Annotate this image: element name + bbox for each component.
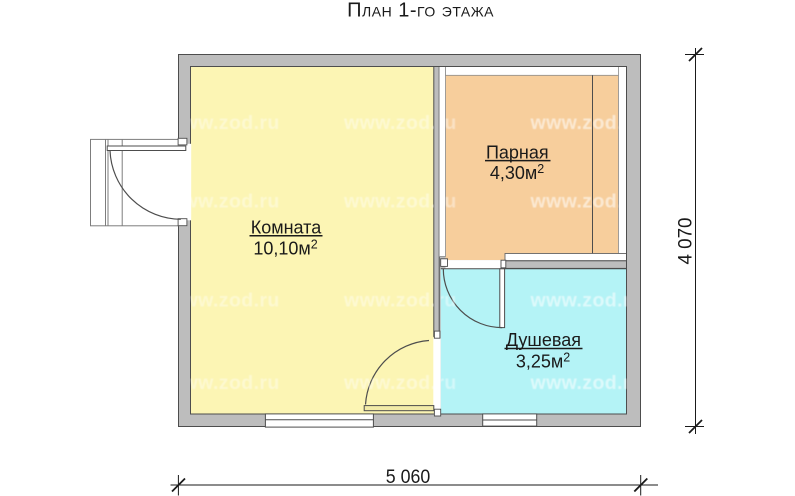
svg-text:4,30м2: 4,30м2: [490, 162, 544, 183]
svg-text:www.zod.ru: www.zod.ru: [530, 290, 644, 312]
svg-text:5 060: 5 060: [386, 466, 431, 488]
svg-text:Душевая: Душевая: [506, 330, 581, 350]
svg-text:Комната: Комната: [251, 218, 322, 238]
svg-text:www.zod.ru: www.zod.ru: [530, 372, 644, 394]
svg-text:План 1-го этажа: План 1-го этажа: [347, 0, 494, 22]
svg-text:10,10м2: 10,10м2: [253, 238, 317, 259]
svg-text:Парная: Парная: [486, 142, 549, 162]
svg-text:4 070: 4 070: [675, 217, 697, 264]
svg-text:3,25м2: 3,25м2: [516, 351, 570, 372]
